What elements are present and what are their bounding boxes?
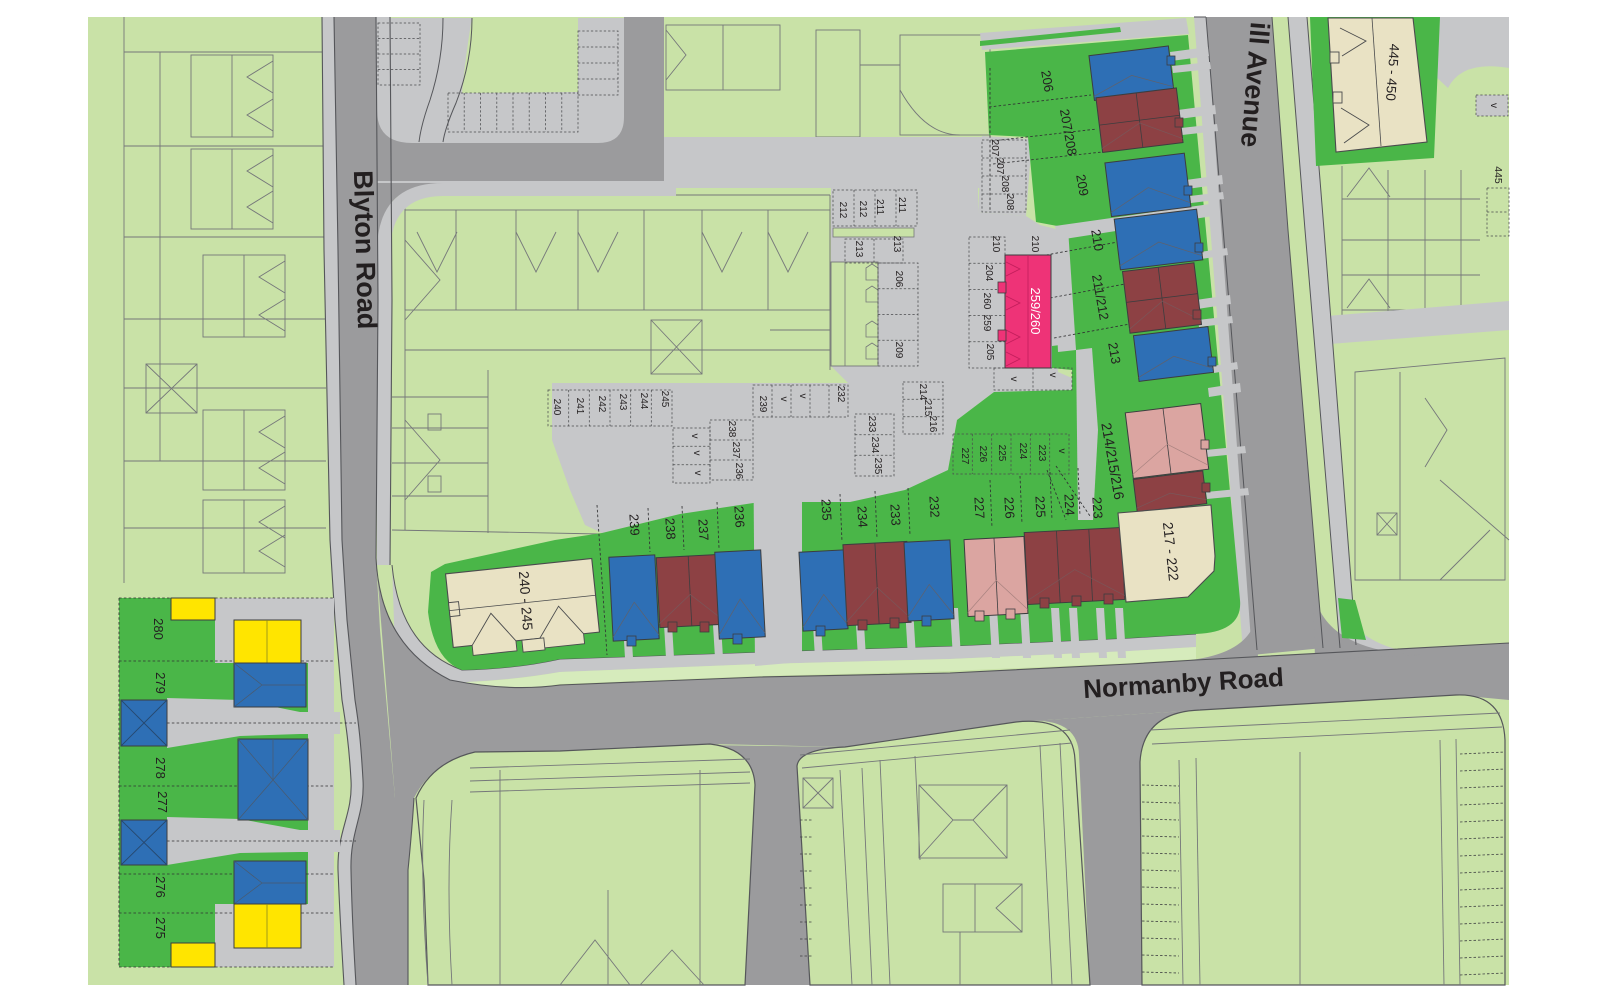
svg-text:259/260: 259/260	[1028, 288, 1043, 335]
svg-text:v: v	[1488, 103, 1499, 108]
svg-text:211: 211	[874, 199, 885, 215]
svg-text:v: v	[692, 471, 703, 476]
svg-text:v: v	[1056, 449, 1067, 454]
svg-text:227: 227	[971, 497, 987, 519]
svg-text:241: 241	[574, 398, 585, 415]
svg-text:232: 232	[835, 386, 846, 403]
svg-text:244: 244	[638, 393, 649, 410]
svg-text:234: 234	[869, 437, 880, 454]
svg-text:277: 277	[155, 791, 170, 813]
svg-text:275: 275	[153, 917, 168, 939]
svg-text:237: 237	[695, 519, 711, 541]
svg-text:226: 226	[977, 446, 988, 463]
svg-text:207: 207	[989, 140, 1000, 157]
svg-text:243: 243	[617, 394, 628, 411]
svg-text:233: 233	[866, 416, 877, 433]
svg-text:224: 224	[1061, 494, 1077, 516]
svg-text:207: 207	[994, 158, 1005, 175]
svg-text:225: 225	[1032, 496, 1048, 518]
svg-text:215: 215	[922, 400, 933, 417]
svg-text:278: 278	[153, 757, 168, 779]
svg-text:235: 235	[818, 499, 834, 521]
svg-text:v: v	[691, 451, 702, 456]
svg-text:214: 214	[917, 384, 928, 401]
svg-text:239: 239	[626, 514, 642, 536]
svg-text:209: 209	[893, 342, 904, 359]
svg-text:236: 236	[731, 506, 747, 528]
svg-text:279: 279	[153, 672, 168, 694]
svg-text:240: 240	[551, 399, 562, 416]
svg-text:239: 239	[757, 396, 768, 413]
svg-text:208: 208	[999, 176, 1010, 193]
svg-text:227: 227	[959, 448, 970, 465]
svg-text:204: 204	[983, 265, 994, 282]
svg-text:242: 242	[596, 396, 607, 413]
svg-text:206: 206	[893, 271, 904, 288]
svg-text:225: 225	[996, 445, 1007, 462]
svg-text:212: 212	[837, 202, 848, 219]
svg-text:211: 211	[896, 197, 907, 213]
svg-text:205: 205	[984, 344, 995, 361]
svg-text:232: 232	[926, 496, 942, 518]
svg-text:238: 238	[726, 421, 737, 438]
svg-text:213: 213	[891, 236, 902, 253]
svg-text:233: 233	[887, 504, 903, 526]
svg-text:259: 259	[981, 315, 992, 332]
svg-text:Blyton Road: Blyton Road	[348, 170, 382, 330]
svg-text:216: 216	[927, 416, 938, 433]
svg-text:276: 276	[153, 876, 168, 898]
svg-text:223: 223	[1089, 497, 1105, 519]
svg-text:234: 234	[854, 506, 870, 528]
svg-text:212: 212	[857, 201, 868, 218]
svg-text:280: 280	[151, 618, 166, 640]
svg-text:v: v	[797, 394, 808, 399]
svg-text:v: v	[689, 434, 700, 439]
svg-text:210: 210	[990, 236, 1001, 253]
svg-text:223: 223	[1036, 445, 1047, 462]
svg-text:236: 236	[733, 463, 744, 480]
svg-text:v: v	[1047, 373, 1058, 378]
svg-text:260: 260	[981, 293, 992, 310]
svg-text:226: 226	[1001, 497, 1017, 519]
svg-text:210: 210	[1029, 236, 1040, 253]
svg-text:v: v	[1008, 377, 1019, 382]
svg-text:213: 213	[853, 241, 864, 258]
svg-text:237: 237	[730, 442, 741, 459]
svg-text:v: v	[778, 397, 789, 402]
svg-text:445: 445	[1492, 166, 1504, 184]
svg-text:235: 235	[872, 458, 883, 475]
svg-text:238: 238	[662, 518, 678, 540]
svg-text:208: 208	[1004, 194, 1015, 211]
svg-text:224: 224	[1017, 443, 1028, 460]
svg-text:245: 245	[659, 391, 670, 408]
